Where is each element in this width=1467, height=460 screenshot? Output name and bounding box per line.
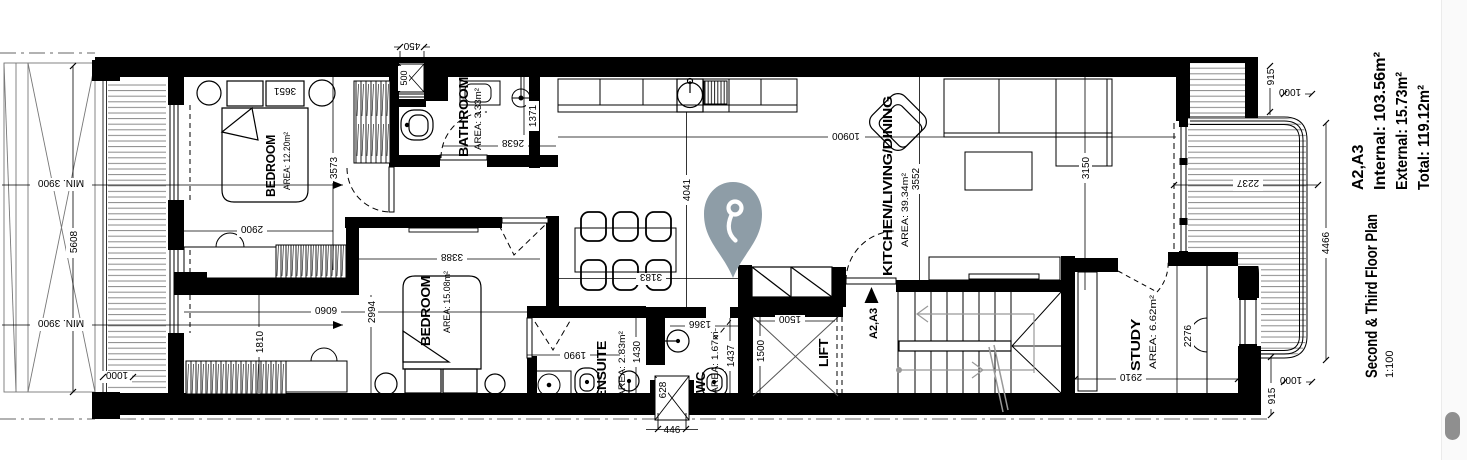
svg-text:5608: 5608 xyxy=(69,230,80,253)
svg-text:AREA: 1.67m²: AREA: 1.67m² xyxy=(710,328,721,394)
svg-text:1500: 1500 xyxy=(778,313,801,324)
svg-text:1:100: 1:100 xyxy=(1384,350,1396,378)
svg-text:A2,A3: A2,A3 xyxy=(1350,145,1367,190)
svg-text:3183: 3183 xyxy=(639,271,662,282)
svg-text:Second & Third Floor Plan: Second & Third Floor Plan xyxy=(1362,214,1381,378)
svg-text:Internal: 103.56m²: Internal: 103.56m² xyxy=(1372,52,1389,190)
svg-text:446: 446 xyxy=(664,425,681,436)
svg-text:BATHROOM: BATHROOM xyxy=(456,77,471,157)
svg-text:628: 628 xyxy=(658,381,669,398)
svg-text:1437: 1437 xyxy=(726,344,737,367)
svg-text:BEDROOM: BEDROOM xyxy=(263,135,278,197)
svg-text:STUDY: STUDY xyxy=(1128,318,1143,371)
svg-text:2994: 2994 xyxy=(367,300,378,323)
svg-text:2910: 2910 xyxy=(1119,371,1142,382)
svg-text:BEDROOM: BEDROOM xyxy=(418,276,433,346)
svg-text:External: 15.73m²: External: 15.73m² xyxy=(1394,72,1411,190)
svg-text:1810: 1810 xyxy=(255,330,266,353)
svg-text:A2,A3: A2,A3 xyxy=(868,308,880,339)
svg-text:1500: 1500 xyxy=(756,339,767,362)
svg-text:2900: 2900 xyxy=(240,223,263,234)
svg-text:1000: 1000 xyxy=(105,369,128,380)
svg-text:10900: 10900 xyxy=(832,130,860,141)
svg-text:6060: 6060 xyxy=(314,304,337,315)
svg-text:1371: 1371 xyxy=(528,104,539,127)
svg-text:AREA: 15.08m²: AREA: 15.08m² xyxy=(442,271,453,333)
svg-text:AREA: 6.62m²: AREA: 6.62m² xyxy=(1148,295,1159,369)
svg-text:KITCHEN/LIVING/DINING: KITCHEN/LIVING/DINING xyxy=(880,96,895,276)
svg-text:AREA: 3.33m²: AREA: 3.33m² xyxy=(473,88,484,150)
svg-text:915: 915 xyxy=(1266,68,1277,85)
svg-text:MIN. 3900: MIN. 3900 xyxy=(37,317,84,328)
svg-text:LIFT: LIFT xyxy=(816,339,831,367)
svg-text:2276: 2276 xyxy=(1183,324,1194,347)
svg-text:1366: 1366 xyxy=(688,318,711,329)
svg-text:Total: 119.12m²: Total: 119.12m² xyxy=(1416,85,1433,190)
svg-text:3552: 3552 xyxy=(911,167,922,190)
svg-text:MIN. 3900: MIN. 3900 xyxy=(37,177,84,188)
svg-text:500: 500 xyxy=(399,70,409,85)
svg-text:2237: 2237 xyxy=(1236,177,1259,188)
svg-text:1430: 1430 xyxy=(632,340,643,363)
svg-text:1990: 1990 xyxy=(563,349,586,360)
svg-text:3651: 3651 xyxy=(273,85,296,96)
svg-text:AREA: 2.83m²: AREA: 2.83m² xyxy=(617,331,628,397)
svg-text:2638: 2638 xyxy=(501,137,524,148)
svg-text:AREA: 12.20m²: AREA: 12.20m² xyxy=(282,132,293,190)
svg-text:4466: 4466 xyxy=(1321,231,1332,254)
svg-text:3150: 3150 xyxy=(1081,156,1092,179)
svg-text:4041: 4041 xyxy=(682,178,693,201)
svg-text:3573: 3573 xyxy=(329,156,340,179)
svg-text:ENSUITE: ENSUITE xyxy=(594,340,609,399)
svg-text:3388: 3388 xyxy=(440,251,463,262)
svg-text:WC: WC xyxy=(693,371,708,393)
svg-text:915: 915 xyxy=(1267,387,1278,404)
svg-text:450: 450 xyxy=(403,40,420,51)
